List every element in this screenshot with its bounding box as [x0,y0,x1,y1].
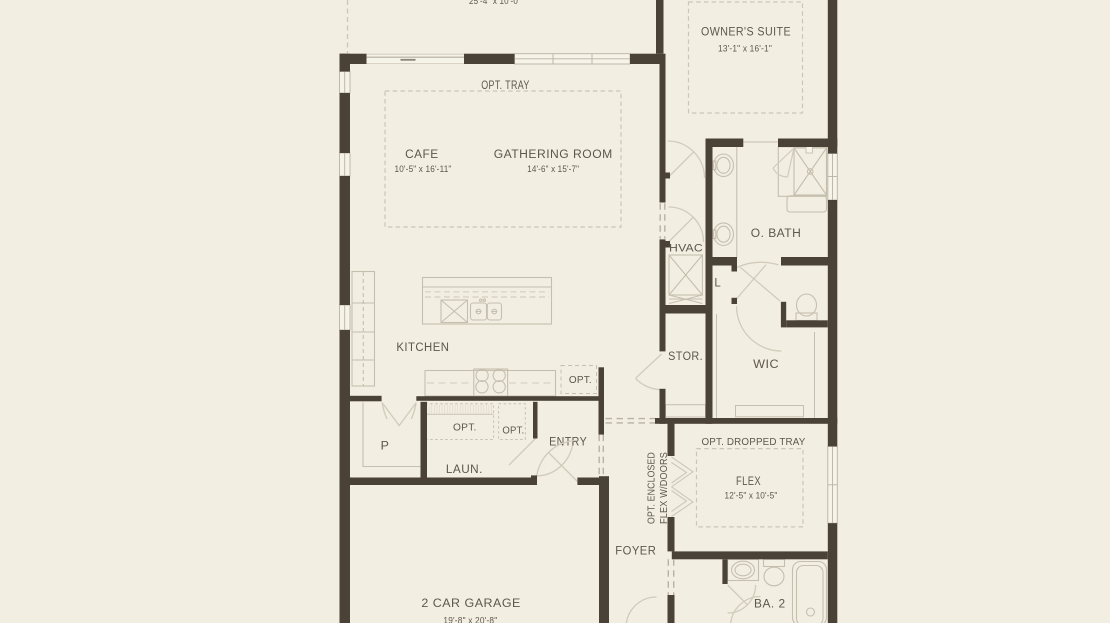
svg-text:WIC: WIC [753,357,779,371]
svg-text:BA. 2: BA. 2 [754,597,786,611]
svg-text:FLEX W/DOORS: FLEX W/DOORS [659,452,670,524]
svg-text:STOR.: STOR. [668,349,703,363]
svg-text:25'-4" x 10'-0": 25'-4" x 10'-0" [469,0,521,6]
svg-text:OPT. DROPPED TRAY: OPT. DROPPED TRAY [702,437,806,448]
svg-text:OPT. ENCLOSED: OPT. ENCLOSED [647,452,658,524]
svg-text:L: L [714,278,721,290]
svg-text:FOYER: FOYER [615,544,656,558]
svg-text:FLEX: FLEX [736,474,761,488]
svg-text:GATHERING ROOM: GATHERING ROOM [494,147,613,161]
svg-text:CAFE: CAFE [405,147,439,161]
svg-text:OPT. TRAY: OPT. TRAY [481,78,530,92]
svg-text:2 CAR GARAGE: 2 CAR GARAGE [421,596,521,610]
svg-text:OPT.: OPT. [569,375,592,386]
svg-text:19'-8" x 20'-8": 19'-8" x 20'-8" [443,616,497,623]
svg-text:O. BATH: O. BATH [751,226,802,240]
svg-text:OWNER'S SUITE: OWNER'S SUITE [701,25,791,39]
svg-text:13'-1" x 16'-1": 13'-1" x 16'-1" [718,44,772,54]
svg-text:OPT.: OPT. [453,423,477,434]
svg-text:HVAC: HVAC [669,243,703,255]
svg-text:12'-5" x 10'-5": 12'-5" x 10'-5" [725,490,778,500]
svg-text:P: P [381,439,390,453]
svg-text:14'-6" x 15'-7": 14'-6" x 15'-7" [527,164,579,174]
svg-text:LAUN.: LAUN. [446,462,483,476]
svg-text:KITCHEN: KITCHEN [396,340,449,354]
svg-text:10'-5" x 16'-11": 10'-5" x 16'-11" [395,164,452,174]
svg-text:OPT.: OPT. [502,426,524,437]
